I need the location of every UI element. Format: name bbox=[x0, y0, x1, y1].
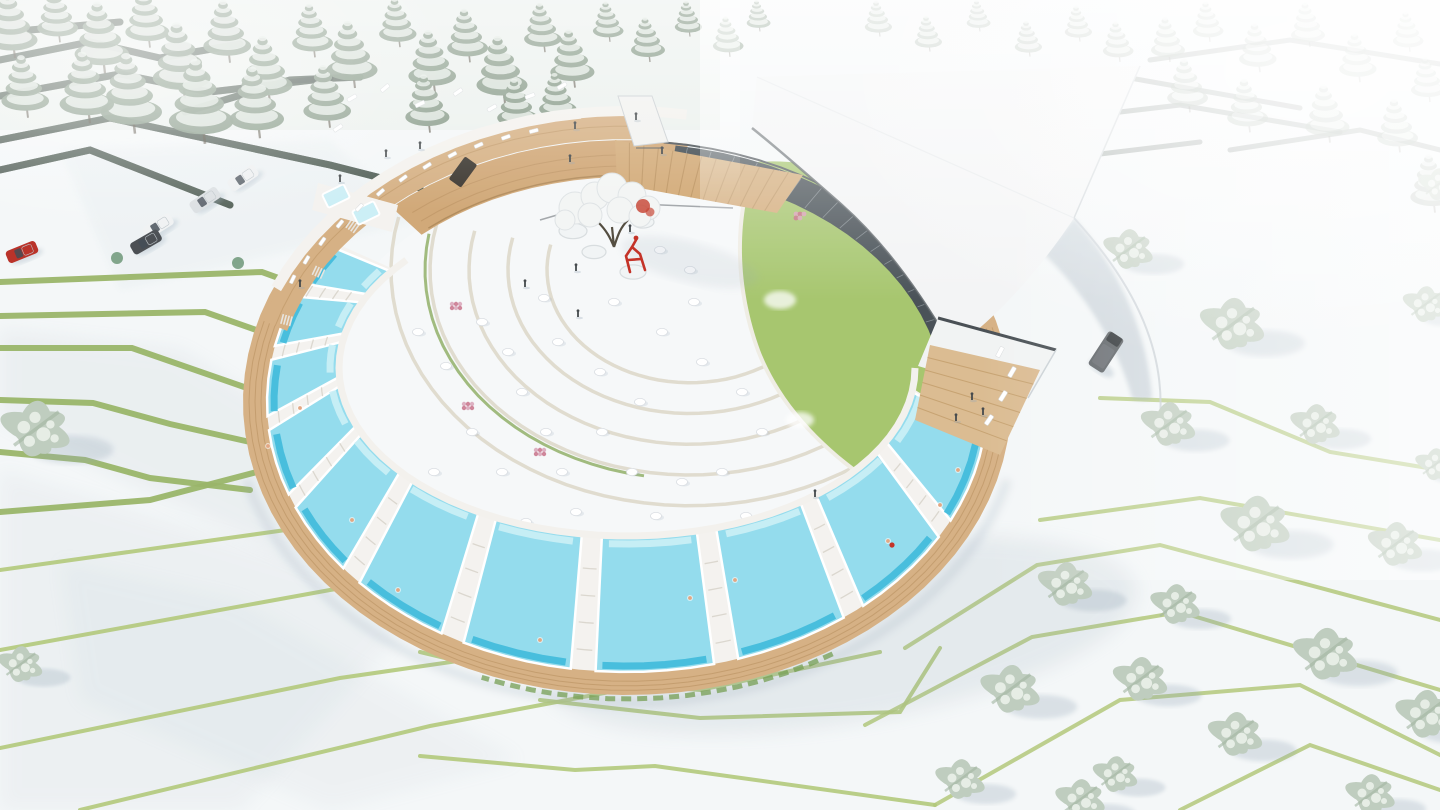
fog-veil bbox=[0, 0, 1440, 810]
fog-overlay bbox=[0, 0, 1440, 810]
architectural-render bbox=[0, 0, 1440, 810]
render-canvas bbox=[0, 0, 1440, 810]
